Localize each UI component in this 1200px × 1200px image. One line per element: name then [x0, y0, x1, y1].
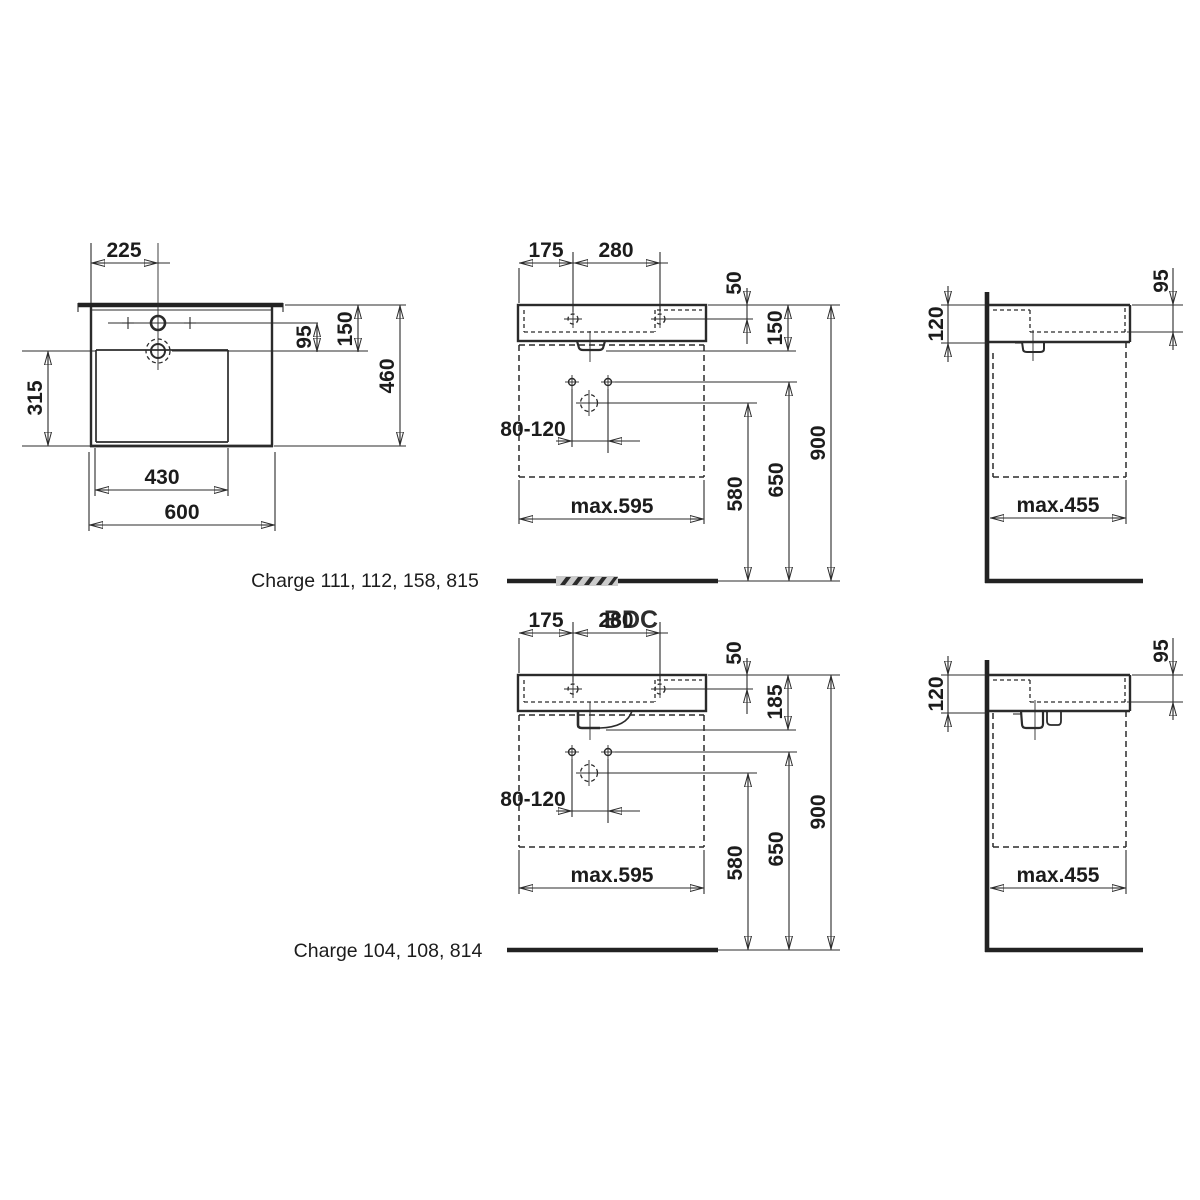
siphon-housing [1013, 700, 1061, 740]
dim-plan-depth: 460 [376, 358, 399, 393]
dim-fb-tap-left: 175 [528, 609, 563, 632]
dim-fb-tap-inset: 50 [723, 641, 746, 664]
dim-plan-bowl-depth: 315 [24, 380, 47, 415]
basin-body [518, 305, 706, 341]
tap-hole-right [651, 680, 669, 698]
dim-st-inner-depth: 95 [1150, 269, 1173, 293]
model-label-bottom: Charge 104, 108, 814 [294, 940, 483, 962]
cabinet-zone-side [993, 711, 1126, 847]
dim-fb-fixing-height: 650 [765, 831, 788, 866]
dim-ft-drain-height: 580 [724, 476, 747, 511]
tap-hole-right [651, 310, 669, 328]
dim-plan-bowl-width: 430 [144, 466, 179, 489]
bowl-underside [578, 702, 632, 740]
dim-ft-tap-span: 280 [598, 239, 633, 262]
dim-ft-tap-inset: 50 [723, 271, 746, 294]
dim-sb-inner-depth: 95 [1150, 639, 1173, 663]
dim-ft-height: 150 [764, 310, 787, 345]
side-view-top: 120 95 max.455 [925, 268, 1183, 583]
floor-line-top [507, 576, 840, 586]
dim-st-unit-depth: max.455 [1017, 494, 1100, 517]
dim-ft-rim-height: 900 [807, 425, 830, 460]
tap-hole-left [564, 680, 582, 698]
plan-view: 225 315 95 150 460 430 600 [22, 239, 479, 592]
dim-fb-unit-width: max.595 [571, 864, 654, 887]
dim-plan-width: 600 [164, 501, 199, 524]
dim-sb-unit-depth: max.455 [1017, 864, 1100, 887]
dim-ft-tap-left: 175 [528, 239, 563, 262]
dim-plan-tap-offset: 225 [106, 239, 141, 262]
dim-fb-fixing-span: 80-120 [500, 788, 565, 811]
watermark-logo: BDC [604, 606, 658, 634]
technical-drawing-sheet: 225 315 95 150 460 430 600 [0, 0, 1200, 1200]
cabinet-zone [519, 715, 704, 847]
dim-fb-drain-height: 580 [724, 845, 747, 880]
drain-outlet [576, 390, 602, 416]
front-view-top: 175 280 50 150 900 650 580 [500, 239, 840, 586]
model-label-top: Charge 111, 112, 158, 815 [251, 570, 479, 592]
basin-body [518, 675, 706, 711]
dim-plan-overflow-offset: 95 [293, 325, 316, 349]
dim-ft-fixing-span: 80-120 [500, 418, 565, 441]
dim-ft-unit-width: max.595 [571, 495, 654, 518]
dim-plan-ledge-depth: 150 [334, 311, 357, 346]
fixing-hole-right [601, 745, 615, 759]
side-view-bottom: 120 95 max.455 [925, 638, 1183, 952]
dim-ft-fixing-height: 650 [765, 462, 788, 497]
cabinet-zone [519, 345, 704, 477]
fixing-hole-right [601, 375, 615, 389]
dim-sb-edge: 120 [925, 676, 948, 711]
washbasin-dimension-drawing: 225 315 95 150 460 430 600 [0, 0, 1200, 1200]
dim-fb-rim-height: 900 [807, 794, 830, 829]
front-view-bottom: 175 280 BDC 50 185 900 650 580 [294, 606, 840, 962]
dim-fb-height: 185 [764, 684, 787, 719]
cabinet-zone-side [993, 342, 1126, 477]
dim-st-edge: 120 [925, 306, 948, 341]
tap-hole-left [564, 310, 582, 328]
drain-outlet [576, 760, 602, 786]
fixing-hole-left [565, 745, 579, 759]
fixing-hole-left [565, 375, 579, 389]
